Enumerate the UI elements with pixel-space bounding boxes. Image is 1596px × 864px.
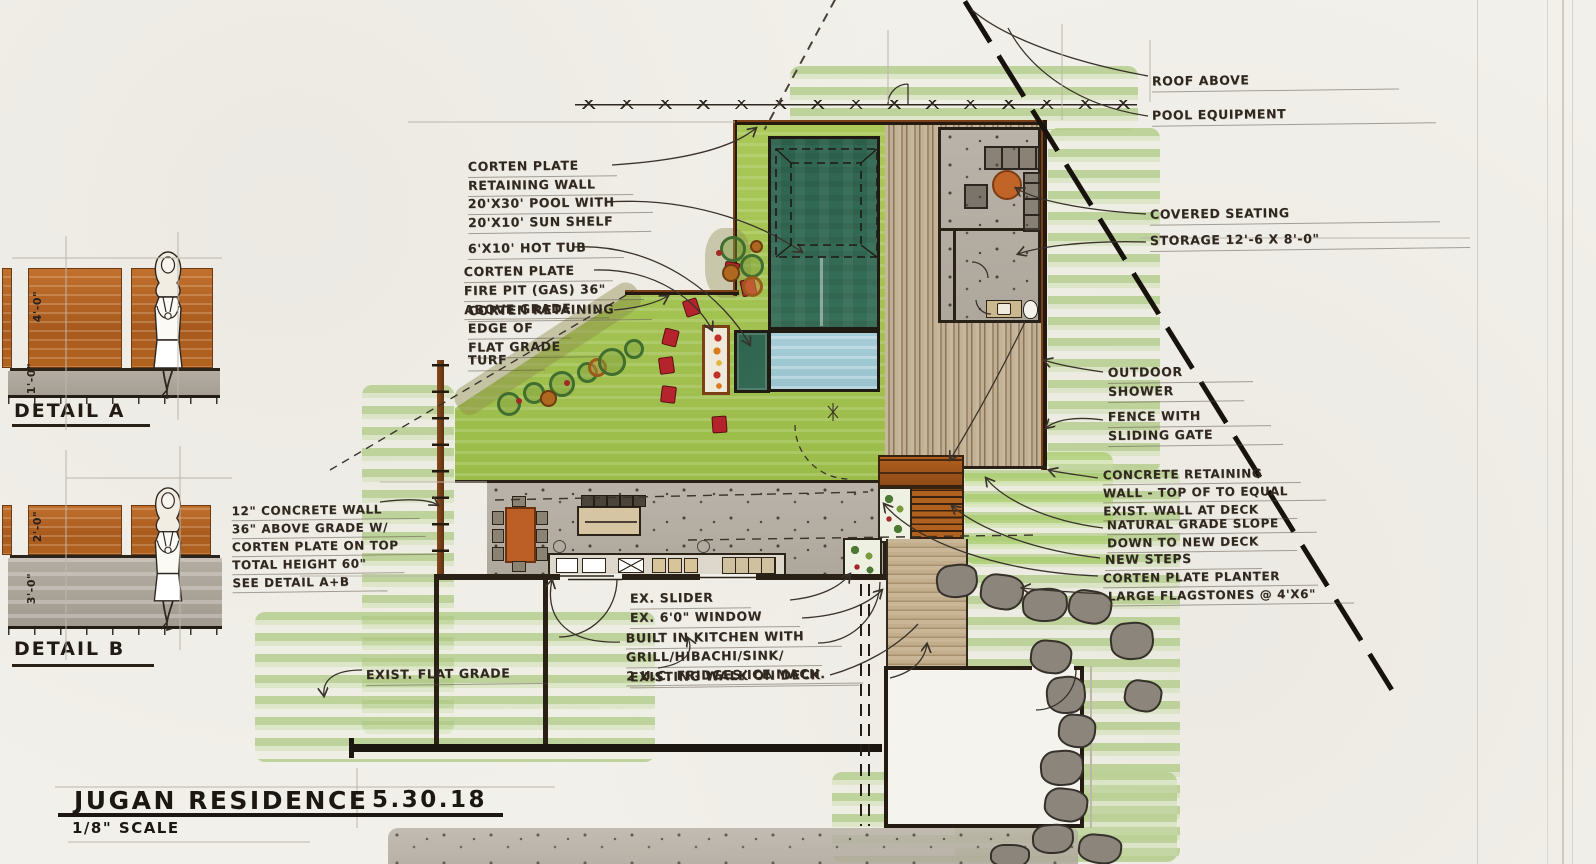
note-concrete-retaining: CONCRETE RETAINING WALL - TOP OF TO EQUA… [1103,465,1327,522]
note-flagstones: LARGE FLAGSTONES @ 4'X6" [1108,585,1354,606]
corten-panel [131,268,213,368]
kitchen-grill [618,558,644,573]
dining-chair [492,511,504,525]
note-line: EX. 6'0" WINDOW [630,608,800,629]
detail-a-wall-dim: 4'-0" [31,291,44,322]
paper-fold-line [1547,0,1548,864]
note-line: ROOF ABOVE [1152,70,1400,92]
note-line: LARGE FLAGSTONES @ 4'X6" [1108,585,1354,606]
note-corten-retaining-wall: CORTEN PLATE RETAINING WALL [468,157,634,197]
note-pool: 20'X30' POOL WITH 20'X10' SUN SHELF [468,194,653,234]
note-line: CONCRETE RETAINING [1103,465,1301,485]
detail-b-drawing [0,440,240,670]
detail-b-underline [12,664,154,667]
window-opening [700,574,756,580]
drain-symbol [697,540,710,553]
note-line: STORAGE 12'-6 X 8'-0" [1150,229,1470,252]
kitchen-island [577,506,641,536]
existing-walk-deck [886,539,968,669]
site-plan-sheet: 4'-0" 1'-0" DETAIL A 2'-0" 3'-0" DETAIL … [0,0,1596,864]
note-line: CORTEN PLATE [464,262,613,283]
note-ex-slider: EX. SLIDER [630,589,752,609]
shrub [516,398,522,404]
shrub [624,339,644,359]
dining-chair [536,511,548,525]
note-line: 20'X10' SUN SHELF [468,213,651,234]
shrub [540,390,557,407]
note-line: 6'X10' HOT TUB [468,239,625,260]
dining-chair [492,547,504,561]
hot-tub [734,330,770,393]
note-line: RETAINING WALL [468,176,634,197]
note-exist-flat-grade: EXIST. FLAT GRADE [366,665,549,686]
sofa [984,146,1040,170]
bar-stool [620,495,633,507]
note-line: EXIST. FLAT GRADE [366,665,549,686]
note-line: CORTEN PLATE ON TOP [232,537,437,558]
detail-a-label: DETAIL A [14,400,125,422]
shrub [722,264,740,282]
note-storage: STORAGE 12'-6 X 8'-0" [1150,229,1470,252]
note-line: SEE DETAIL A+B [232,574,387,594]
dining-chair [512,496,526,507]
note-pool-equipment: POOL EQUIPMENT [1152,104,1436,126]
dining-chair [536,547,548,561]
detail-a-base-dim: 1'-0" [25,363,38,394]
paper-fold-line [1477,0,1478,864]
sun-shelf [768,330,880,392]
red-chair [658,356,675,375]
toilet [1023,300,1038,319]
turf-terrace-edge [455,480,885,483]
sheet-date: 5.30.18 [372,787,487,813]
paper-fold-line [1572,0,1573,864]
kitchen-appliance [582,558,606,573]
pool-lane-line [820,258,823,326]
wall-end-post [349,738,354,758]
sink [997,303,1011,315]
note-line: FIRE PIT (GAS) 36" [464,281,644,302]
corten-steps [908,487,964,539]
note-line: CORTEN PLATE [468,157,617,178]
grass-wash-bottom-left [255,612,655,762]
round-table [992,170,1022,200]
note-line: OUTDOOR [1108,363,1253,384]
corten-planter-box [878,487,912,543]
shrub [598,348,626,376]
house-wall-top [434,574,886,580]
red-chair [660,385,677,404]
house-wall-left [434,574,439,752]
note-line: FENCE WITH [1108,407,1271,428]
note-line: SLIDING GATE [1108,426,1283,447]
pool [768,136,880,330]
corten-panel [131,505,211,555]
note-line: GRILL/HIBACHI/SINK/ [626,647,822,668]
corten-panel [2,505,12,555]
slider-opening [560,574,622,580]
note-line: COVERED SEATING [1150,203,1440,225]
note-line: NEW STEPS [1105,550,1262,571]
sofa-side [1023,172,1042,232]
grass-ticks [8,629,222,635]
note-line: 12" CONCRETE WALL [231,501,420,521]
corten-panel [2,268,12,368]
note-corten-planter: CORTEN PLATE PLANTER [1103,568,1318,589]
dining-chair [492,529,504,543]
steps-header [878,455,964,487]
note-outdoor-shower: OUTDOOR SHOWER [1108,363,1253,402]
concrete-wall [8,558,222,626]
note-covered-seating: COVERED SEATING [1150,203,1440,225]
note-line: POOL EQUIPMENT [1152,104,1436,126]
room-outer-line [1090,666,1092,828]
drain-symbol [553,540,566,553]
shrub [740,254,764,278]
note-ex-window: EX. 6'0" WINDOW [630,608,800,629]
note-roof-above: ROOF ABOVE [1152,70,1400,92]
note-fence-gate: FENCE WITH SLIDING GATE [1108,407,1283,447]
paper-fold-line [1562,0,1564,864]
fence-line [575,100,1137,109]
note-new-steps: NEW STEPS [1105,550,1262,571]
note-existing-walk: EXISTING WALK ON DECK [630,667,859,689]
title-underline [58,813,503,817]
lounge-chair [964,184,988,209]
note-line: EX. SLIDER [630,589,752,609]
flagstone [990,844,1030,864]
bar-stool [607,495,620,507]
note-concrete-wall: 12" CONCRETE WALL 36" ABOVE GRADE W/ COR… [231,501,437,594]
note-line: TOTAL HEIGHT 60" [232,555,404,575]
note-line: EDGE OF [468,320,572,340]
kitchen-icemaker [684,558,698,573]
shrub [497,392,521,416]
detail-b-corten-dim: 2'-0" [31,511,44,542]
plan-wall-top [735,120,1047,125]
shrub [716,250,722,256]
detail-a-underline [12,424,150,427]
bottom-concrete-walk [388,828,1078,864]
bar-stool [581,495,594,507]
note-line: 36" ABOVE GRADE W/ [232,519,426,539]
sheet-scale: 1/8" SCALE [72,819,180,837]
note-line: TURF [468,352,545,372]
kitchen-appliance [556,558,578,573]
kitchen-cabinet [722,557,776,574]
note-turf: TURF [468,352,545,372]
concrete-base [8,371,220,397]
shrub [564,380,570,386]
project-title: JUGAN RESIDENCE [74,786,368,815]
note-line: SHOWER [1108,382,1244,402]
dining-table [505,507,536,563]
kitchen-fridge [652,558,666,573]
note-hot-tub: 6'X10' HOT TUB [468,239,625,260]
bar-stool [633,495,646,507]
note-line: EXISTING WALK ON DECK [630,667,859,689]
flagstone [1077,832,1123,864]
note-line: 20'X30' POOL WITH [468,194,653,215]
shrub [750,240,763,253]
shrub [742,276,763,297]
dining-chair [512,561,526,572]
note-line: CORTEN PLATE PLANTER [1103,568,1318,589]
fire-pit [702,325,730,395]
red-chair [711,415,727,433]
note-natural-grade: NATURAL GRADE SLOPE DOWN TO NEW DECK [1107,515,1317,554]
detail-b-label: DETAIL B [14,638,125,660]
detail-b-wall-dim: 3'-0" [25,573,38,604]
bar-stool [594,495,607,507]
existing-heavy-wall [350,744,882,752]
plan-wall-right [1041,120,1047,470]
kitchen-fridge [668,558,682,573]
storage-stub-wall [953,228,956,323]
dining-chair [536,529,548,543]
